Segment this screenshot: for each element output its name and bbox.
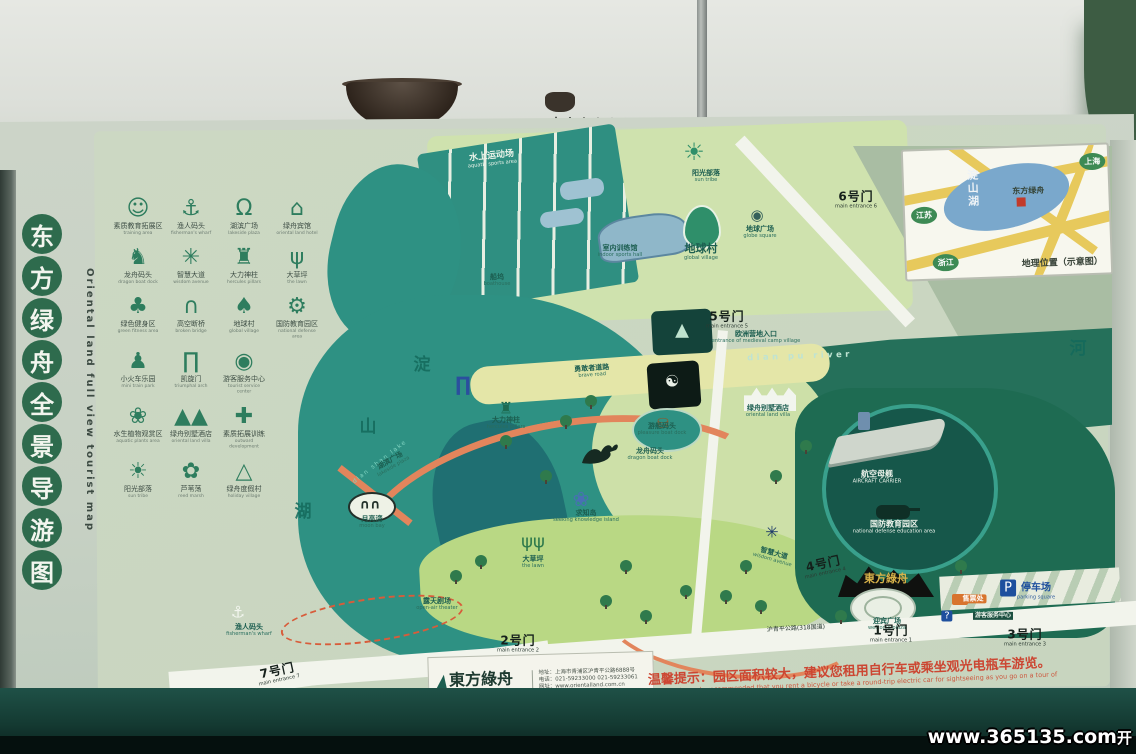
legend-item: ∏凯旋门triumphal arch [165, 349, 217, 395]
legend-label-en: triumphal arch [168, 383, 215, 388]
legend-item: ☀阳光部落sun tribe [112, 459, 164, 499]
legend-label-en: dragon boat dock [115, 279, 162, 284]
tree-icon [740, 560, 752, 572]
legend-label-cn: 高空断桥 [165, 320, 217, 328]
pillars-icon: ♜ [218, 245, 270, 271]
gate3-label-cn: 3号门 [1000, 629, 1049, 642]
gate5-label-cn: 5号门 [702, 311, 751, 324]
title-char: 方 [22, 256, 62, 296]
legend-label-en: green fitness area [115, 328, 162, 333]
theater-label-en: open-air theater [416, 606, 458, 611]
train-icon: ♟ [112, 349, 164, 375]
knowledge-island-label-en: seeking knowledge island [553, 518, 619, 523]
ferry-dock-label-en: pleasure boat dock [638, 431, 687, 436]
legend-label-cn: 国防教育园区 [271, 320, 323, 328]
hercules-label: 大力神柱hercules pillars [483, 417, 528, 431]
legend-label-en: fisherman's wharf [168, 230, 215, 235]
tree-icon [955, 560, 967, 572]
legend-item: ♣绿色健身区green fitness area [112, 294, 164, 340]
location-inset-map: 淀山湖 东方绿舟 上海江苏浙江 地理位置（示意图） [901, 142, 1113, 281]
tree-icon [475, 555, 487, 567]
drop-icon: ♠ [218, 294, 270, 320]
legend-item: ⌂绿舟宾馆oriental land hotel [271, 196, 323, 236]
gate1-label-cn: 1号门 [866, 625, 915, 638]
lake-char-hu: 湖 [295, 504, 312, 522]
inset-lake-label: 淀山湖 [963, 169, 980, 209]
brave-road-label: 勇敢者道路brave road [574, 364, 610, 380]
gate5-label-en: main entrance 5 [706, 324, 748, 329]
lake-char-shan-cn: 山 [360, 419, 377, 437]
wall-right-of-billboard [1110, 140, 1136, 754]
tree-icon [640, 610, 652, 622]
gate1-label: 1号门main entrance 1 [866, 625, 915, 644]
legend-item: ◉游客服务中心tourist service center [218, 349, 270, 395]
gate1-label-en: main entrance 1 [870, 638, 912, 643]
inset-region-江苏: 江苏 [911, 206, 938, 224]
legend-item: △绿舟度假村holiday village [218, 459, 270, 499]
legend-label-en: wisdom avenue [168, 279, 215, 284]
parking-label-en: parking square [1017, 595, 1055, 600]
legend-label-en: oriental land hotel [274, 230, 321, 235]
legend-label-cn: 绿舟宾馆 [271, 222, 323, 230]
indoor-hall-label: 室内训练馆indoor sports hall [594, 245, 646, 259]
legend-label-cn: 绿色健身区 [112, 320, 164, 328]
legend-row: ♣绿色健身区green fitness area∩高空断桥broken brid… [112, 294, 324, 340]
title-char: 东 [22, 214, 62, 254]
theater-label: 露天剧场open-air theater [413, 598, 462, 612]
lake-char-shan: 山 [360, 419, 377, 437]
legend-item: Ω湖滨广场lakeside plaza [218, 196, 270, 236]
title-char: 全 [22, 382, 62, 422]
wharf-boat-icon: ⚓ [165, 196, 217, 222]
legend-item: ⚙国防教育园区national defense area [271, 294, 323, 340]
tree-icon [680, 585, 692, 597]
inset-site-marker [1017, 197, 1026, 206]
moon-bay-label: 月亮湾moon bay [357, 516, 387, 530]
legend-label-cn: 湖滨广场 [218, 222, 270, 230]
gate5-label: 5号门main entrance 5 [702, 311, 751, 330]
tree-icon [540, 470, 552, 482]
fisherman-wharf-label: 渔人码头fisherman's wharf [222, 624, 276, 638]
gate3-label-en: main entrance 3 [1004, 642, 1046, 647]
tree-icon [755, 600, 767, 612]
scarecrow-icon: ✚ [218, 404, 270, 430]
wisdom-avenue-knot-icon: ✳ [765, 523, 778, 542]
legend-label-en: lakeside plaza [221, 230, 268, 235]
tree-icon [770, 470, 782, 482]
legend-item: ▲▲绿舟别墅酒店oriental land villa [165, 404, 217, 450]
lawn-grass-icon: ψψ [521, 532, 545, 553]
tree-icon [835, 610, 847, 622]
carrier-tower-icon [858, 412, 870, 430]
inset-region-上海: 上海 [1079, 153, 1106, 171]
dragon-boat-icon [578, 437, 622, 467]
title-char: 图 [22, 550, 62, 590]
moon-bay-arch-icon: ∩∩ [359, 498, 380, 513]
global-village-label-cn: 地球村 [681, 243, 721, 255]
tent-icon: △ [218, 459, 270, 485]
parking-label: 停车场parking square [1013, 584, 1058, 601]
tree-icon [800, 440, 812, 452]
gate2-label-cn: 2号门 [493, 635, 542, 648]
tank-icon [876, 505, 910, 519]
legend-label-cn: 水生植物观赏区 [112, 430, 164, 438]
legend-label-en: hercules pillars [221, 279, 268, 284]
villa-label-en: oriental land villa [746, 413, 790, 418]
inset-region-浙江: 浙江 [932, 254, 959, 272]
information-icon: ? [941, 611, 952, 622]
tree-icon [600, 595, 612, 607]
legend-item: ♞龙舟码头dragon boat dock [112, 245, 164, 285]
global-village-label-en: global village [684, 255, 718, 260]
legend-label-cn: 智慧大道 [165, 271, 217, 279]
legend-label-en: aquatic plants area [115, 438, 162, 443]
legend-label-cn: 素质教育拓展区 [112, 222, 164, 230]
legend-label-en: global village [221, 328, 268, 333]
mascot-icon: ☺ [112, 196, 164, 222]
camp-entrance-label-en: entrance of medieval camp village [712, 339, 801, 344]
legend-label-cn: 大力神柱 [218, 271, 270, 279]
globe-square-icon: ◉ [750, 206, 763, 224]
billboard-left-edge [0, 170, 16, 754]
legend-label-cn: 绿舟别墅酒店 [165, 430, 217, 438]
legend-label-en: training area [115, 230, 162, 235]
legend-label-cn: 凯旋门 [165, 375, 217, 383]
gate6-label: 6号门main entrance 6 [831, 191, 880, 210]
lake-char-dian: 淀 [414, 357, 431, 375]
legend-item: ⚓渔人码头fisherman's wharf [165, 196, 217, 236]
tree-icon [450, 570, 462, 582]
river-char-label-cn: 河 [1070, 341, 1087, 359]
globe-square-label-en: globe square [743, 234, 776, 239]
title-char: 舟 [22, 340, 62, 380]
clover-figure-icon: ♣ [112, 294, 164, 320]
website-watermark: www.365135.com开 [928, 726, 1132, 748]
legend-label-cn: 小火车乐园 [112, 375, 164, 383]
gate3-label: 3号门main entrance 3 [1000, 629, 1049, 648]
camp-tent-icon: ▲ [675, 320, 689, 341]
legend-item: ❀水生植物观赏区aquatic plants area [112, 404, 164, 450]
fisherman-boat-icon: ⚓ [231, 603, 245, 622]
gate2-label: 2号门main entrance 2 [493, 635, 542, 654]
ticket-office-label: 售票处 [960, 594, 987, 603]
grass-icon: ψ [271, 245, 323, 271]
legend-item: ☺素质教育拓展区training area [112, 196, 164, 236]
legend-item: ✳智慧大道wisdom avenue [165, 245, 217, 285]
legend-label-en: national defense area [274, 329, 321, 340]
legend-label-en: outward development [221, 439, 268, 450]
legend-label-cn: 游客服务中心 [218, 375, 270, 383]
title-char: 景 [22, 424, 62, 464]
lake-char-hu-cn: 湖 [295, 504, 312, 522]
title-char: 导 [22, 466, 62, 506]
legend-row: ☀阳光部落sun tribe✿芦苇荡reed marsh△绿舟度假村holida… [112, 459, 324, 499]
tank-barrel-icon [906, 508, 920, 511]
legend-label-en: sun tribe [115, 493, 162, 498]
hercules-pillars-icon: ♜ [499, 399, 513, 418]
carrier-label: 航空母舰AIRCRAFT CARRIER [848, 471, 905, 486]
dragon-dock-label: 龙舟码头dragon boat dock [624, 448, 677, 462]
gate6-label-en: main entrance 6 [835, 204, 877, 209]
lake-char-dian-cn: 淀 [414, 357, 431, 375]
legend-label-en: mini train park [115, 383, 162, 388]
boathouse-label-en: boathouse [484, 282, 511, 287]
oriental-sign-label: 東方綠舟 [864, 573, 908, 585]
knot-icon: ✳ [165, 245, 217, 271]
boathouse-label: 船坞boathouse [481, 274, 513, 288]
camera-icon: ◉ [218, 349, 270, 375]
gate2-label-en: main entrance 2 [497, 648, 539, 653]
river-char-label: 河 [1070, 341, 1087, 359]
legend-item: ♟小火车乐园mini train park [112, 349, 164, 395]
tents-icon: ▲▲ [165, 404, 217, 430]
legend-label-cn: 阳光部落 [112, 485, 164, 493]
legend-label-cn: 绿舟度假村 [218, 485, 270, 493]
legend-item: ψ大草坪the lawn [271, 245, 323, 285]
moon-bay-label-en: moon bay [359, 524, 384, 529]
lawn-label-en: the lawn [522, 564, 544, 569]
title-char: 游 [22, 508, 62, 548]
parking-label-cn: 停车场 [1013, 584, 1058, 595]
plaza-arch-icon: Ω [218, 196, 270, 222]
tourist-center-label-cn: 游客服务中心 [973, 612, 1013, 620]
sun-tribe-label: 阳光部落sun tribe [692, 170, 720, 184]
lotus-icon: ❀ [112, 404, 164, 430]
tree-icon [720, 590, 732, 602]
legend-item: ✚素质拓展训练outward development [218, 404, 270, 450]
camp-entrance-label: 欧洲营地入口entrance of medieval camp village [704, 331, 808, 345]
fisherman-wharf-label-en: fisherman's wharf [226, 632, 272, 637]
legend-label-cn: 素质拓展训练 [218, 430, 270, 438]
villa-label: 绿舟别墅酒店oriental land villa [742, 405, 794, 419]
legend-label-en: holiday village [221, 493, 268, 498]
tree-icon [500, 435, 512, 447]
legend-item: ∩高空断桥broken bridge [165, 294, 217, 340]
ferry-dock-label: 游船码头pleasure boat dock [633, 423, 690, 437]
map-legend: ☺素质教育拓展区training area⚓渔人码头fisherman's wh… [112, 196, 324, 508]
legend-row: ☺素质教育拓展区training area⚓渔人码头fisherman's wh… [112, 196, 324, 236]
map-title-english: Oriental land full view tourist map [84, 268, 95, 532]
bridge-icon: ∩ [165, 294, 217, 320]
tree-icon [560, 415, 572, 427]
legend-label-en: the lawn [274, 279, 321, 284]
legend-label-en: reed marsh [168, 493, 215, 498]
defense-label-en: national defense education area [853, 530, 936, 535]
legend-row: ❀水生植物观赏区aquatic plants area▲▲绿舟别墅酒店orien… [112, 404, 324, 450]
map-title-vertical: 东方绿舟全景导游图 [22, 212, 78, 592]
park-logo-chinese: 東方綠舟 [449, 665, 514, 691]
legend-row: ♞龙舟码头dragon boat dock✳智慧大道wisdom avenue♜… [112, 245, 324, 285]
sun-tribe-label-en: sun tribe [694, 178, 718, 183]
hercules-label-en: hercules pillars [487, 425, 526, 430]
hotel-icon: ⌂ [271, 196, 323, 222]
photo-of-tourist-map-billboard: 东方绿舟全景导游图 Oriental land full view touris… [0, 0, 1136, 754]
inset-site-label: 东方绿舟 [1012, 185, 1044, 197]
arch-bridge-icon: ∏ [455, 372, 471, 396]
arch-gate-icon: ∏ [165, 349, 217, 375]
inset-caption: 地理位置（示意图） [1022, 254, 1103, 270]
sun-icon: ☀ [112, 459, 164, 485]
legend-item: ♠地球村global village [218, 294, 270, 340]
legend-item: ♜大力神柱hercules pillars [218, 245, 270, 285]
gate6-label-cn: 6号门 [831, 191, 880, 204]
carrier-label-en: AIRCRAFT CARRIER [853, 480, 902, 485]
legend-item: ✿芦苇荡reed marsh [165, 459, 217, 499]
oriental-sign-label-cn: 東方綠舟 [864, 573, 908, 585]
lamp-cap [545, 92, 575, 112]
indoor-hall-label-en: indoor sports hall [598, 253, 642, 258]
tree-icon [620, 560, 632, 572]
legend-label-en: tourist service center [221, 384, 268, 395]
legend-label-en: oriental land villa [168, 438, 215, 443]
tree-icon [585, 395, 597, 407]
legend-label-en: broken bridge [168, 328, 215, 333]
globe-square-label: 地球广场globe square [741, 226, 780, 240]
legend-label-cn: 地球村 [218, 320, 270, 328]
legend-label-cn: 大草坪 [271, 271, 323, 279]
legend-label-cn: 龙舟码头 [112, 271, 164, 279]
lawn-label: 大草坪the lawn [520, 556, 546, 570]
vehicle-icon: ⚙ [271, 294, 323, 320]
defense-label: 国防教育园区national defense education area [845, 521, 942, 536]
dragon-icon: ♞ [112, 245, 164, 271]
global-village-label: 地球村global village [681, 243, 721, 261]
knowledge-island-label: 求知岛seeking knowledge island [547, 510, 624, 524]
dragon-dock-label-en: dragon boat dock [628, 456, 673, 461]
title-char: 绿 [22, 298, 62, 338]
sun-tribe-icon: ☀ [683, 138, 705, 166]
knowledge-island-flower-icon: ❀ [573, 487, 590, 511]
legend-row: ♟小火车乐园mini train park∏凯旋门triumphal arch◉… [112, 349, 324, 395]
legend-label-cn: 芦苇荡 [165, 485, 217, 493]
legend-label-cn: 渔人码头 [165, 222, 217, 230]
ticket-office-label-cn: 售票处 [960, 594, 987, 603]
tourist-center-label: 游客服务中心 [973, 612, 1013, 620]
yin-yang-icon: ☯ [665, 372, 679, 391]
reed-icon: ✿ [165, 459, 217, 485]
